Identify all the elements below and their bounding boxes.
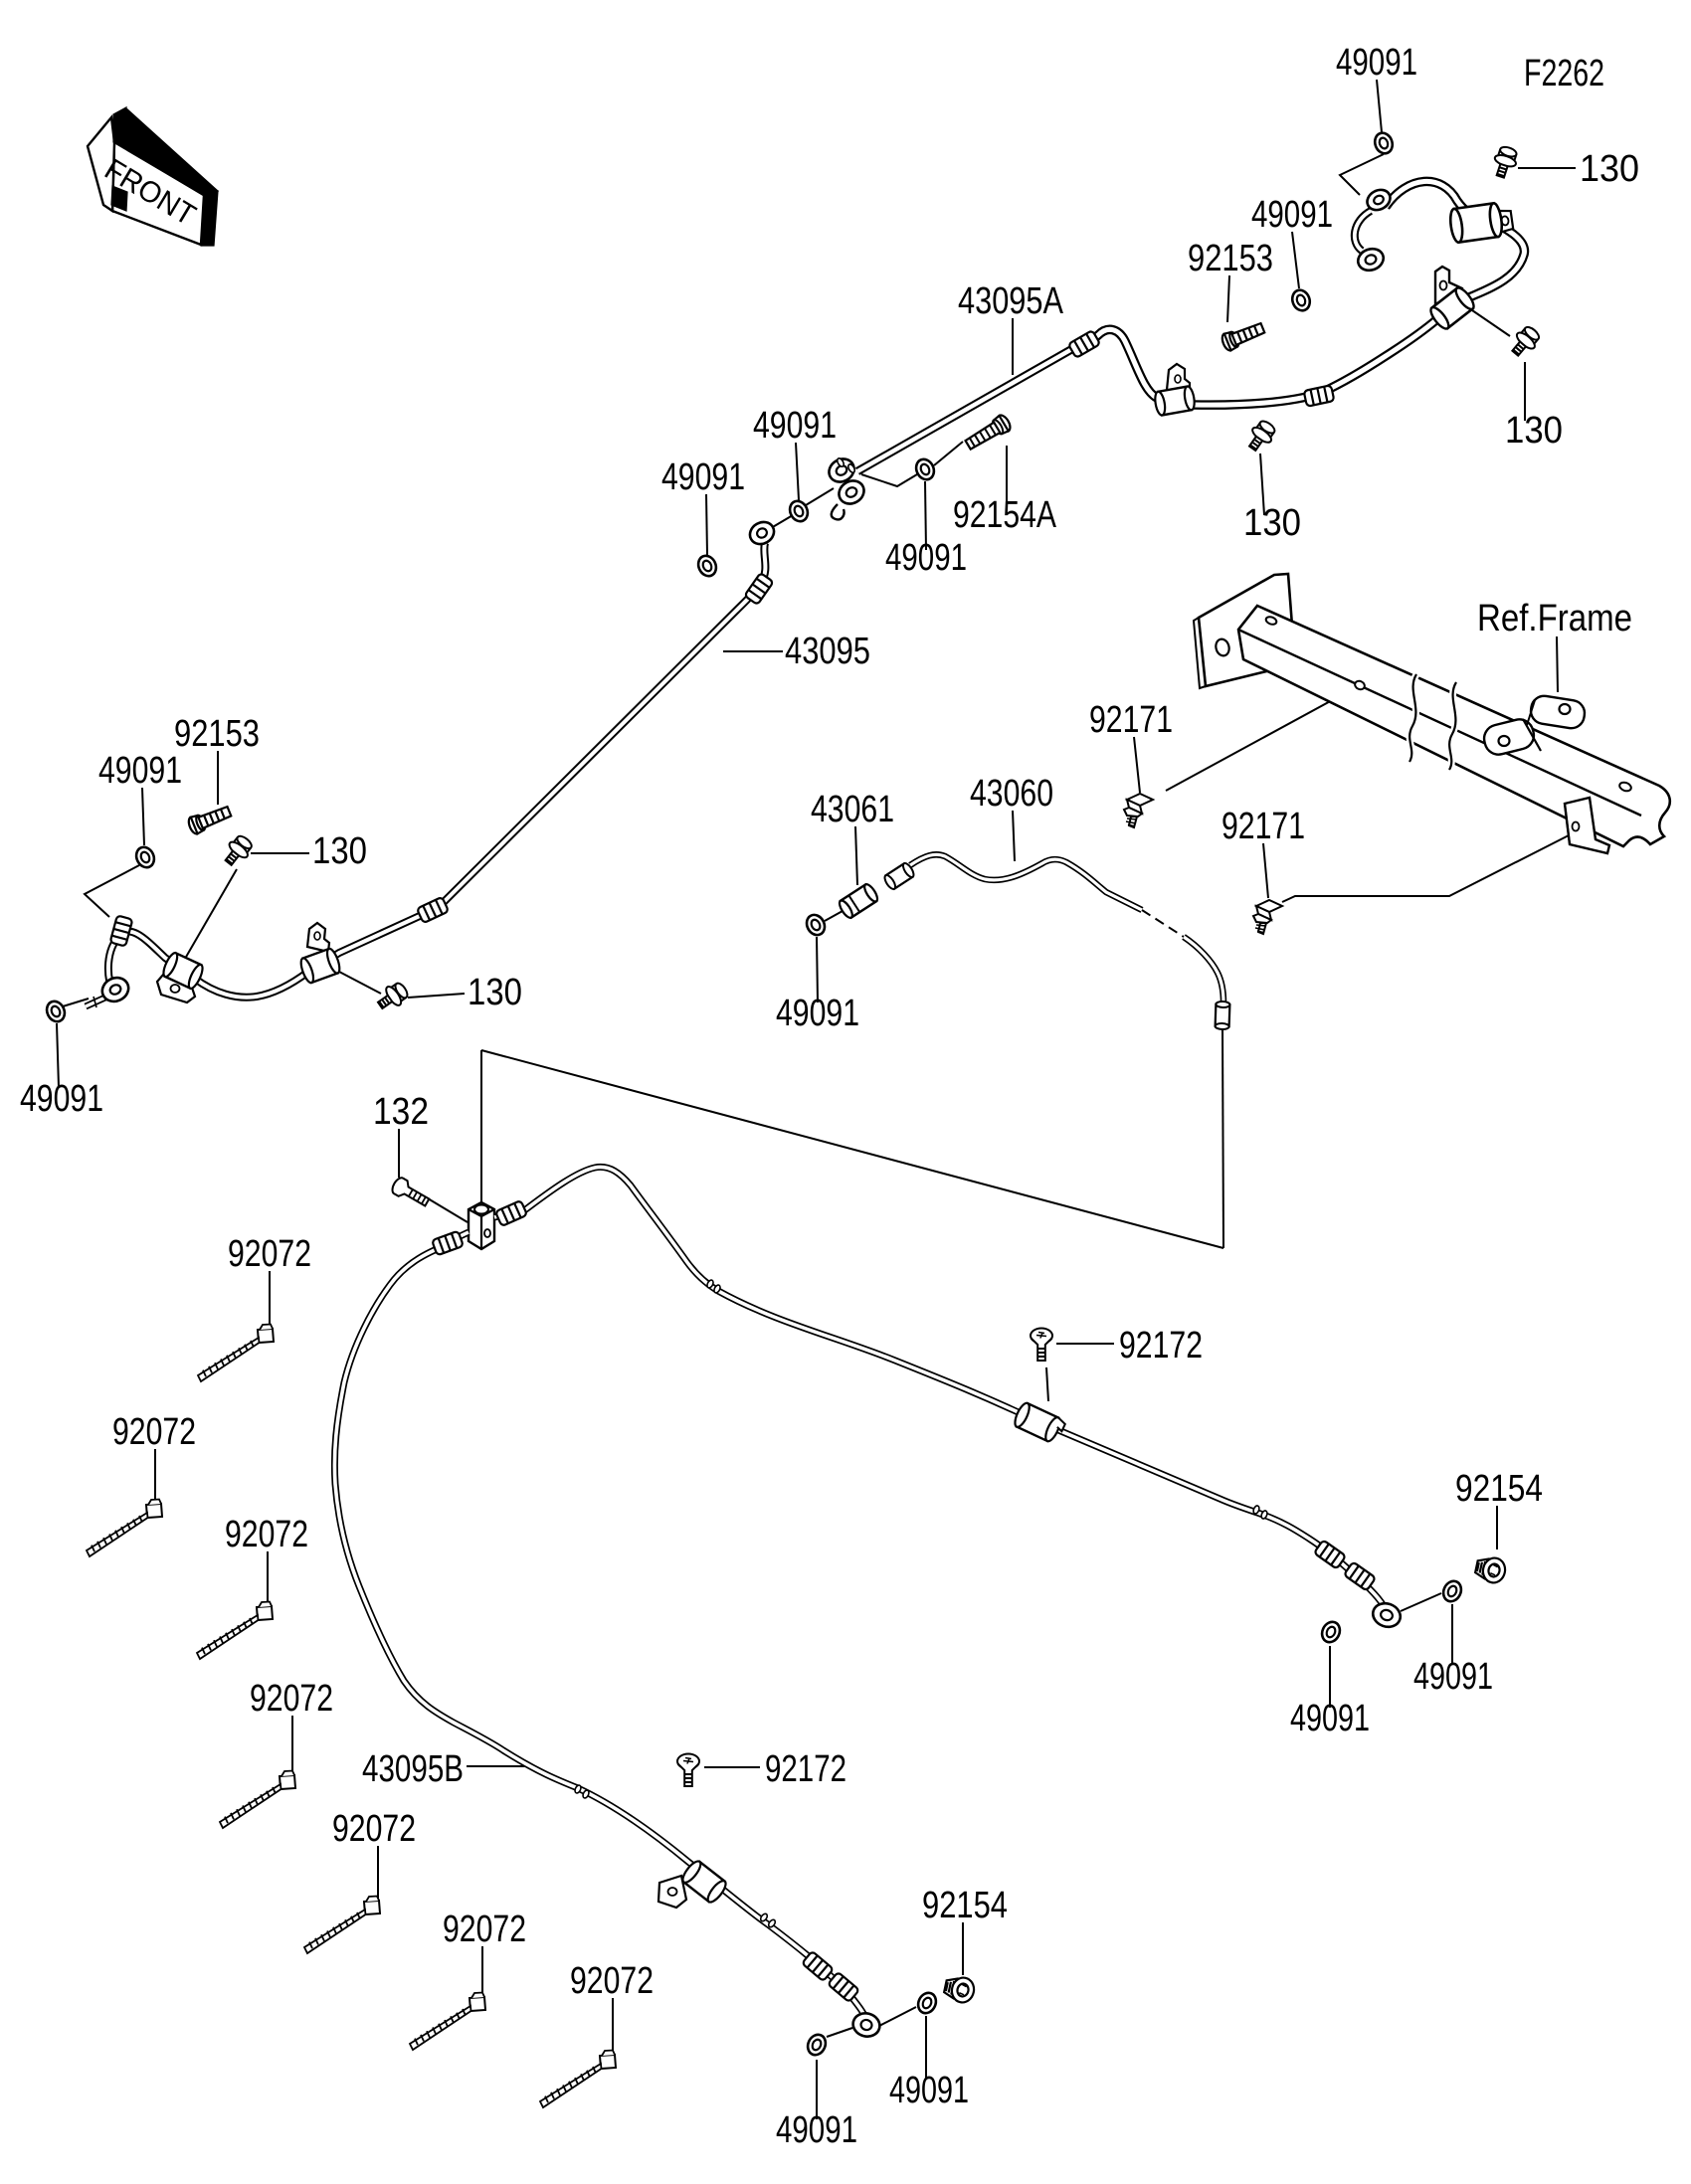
svg-text:43095: 43095 [785, 631, 870, 672]
svg-text:92072: 92072 [443, 1909, 526, 1950]
svg-text:130: 130 [312, 830, 367, 872]
svg-text:92154: 92154 [1455, 1468, 1543, 1510]
svg-text:Ref.Frame: Ref.Frame [1477, 598, 1632, 639]
svg-text:130: 130 [468, 972, 522, 1013]
svg-text:43095A: 43095A [958, 280, 1064, 322]
svg-text:92153: 92153 [1188, 238, 1273, 279]
svg-text:132: 132 [373, 1091, 429, 1133]
svg-text:49091: 49091 [753, 405, 837, 447]
svg-text:F2262: F2262 [1524, 53, 1604, 94]
svg-text:130: 130 [1505, 410, 1563, 452]
svg-text:92072: 92072 [570, 1960, 654, 2002]
svg-text:92072: 92072 [332, 1808, 416, 1850]
svg-text:92072: 92072 [112, 1411, 196, 1453]
svg-text:49091: 49091 [889, 2070, 969, 2111]
svg-text:49091: 49091 [1336, 42, 1417, 84]
svg-text:92154: 92154 [922, 1885, 1008, 1926]
svg-text:92171: 92171 [1089, 699, 1173, 741]
svg-text:92172: 92172 [1119, 1325, 1203, 1366]
svg-text:92072: 92072 [225, 1514, 308, 1555]
svg-text:92072: 92072 [228, 1233, 311, 1275]
svg-text:49091: 49091 [20, 1078, 103, 1120]
svg-text:130: 130 [1580, 148, 1639, 190]
svg-text:49091: 49091 [1251, 194, 1333, 236]
svg-text:92171: 92171 [1221, 806, 1305, 847]
svg-text:92154A: 92154A [953, 494, 1057, 536]
svg-text:92172: 92172 [765, 1748, 846, 1790]
svg-text:92072: 92072 [250, 1678, 333, 1720]
svg-text:92153: 92153 [174, 713, 260, 755]
svg-text:43060: 43060 [970, 773, 1053, 815]
svg-text:130: 130 [1243, 502, 1301, 544]
svg-text:49091: 49091 [661, 456, 745, 498]
svg-text:43095B: 43095B [362, 1748, 464, 1790]
svg-text:49091: 49091 [98, 750, 182, 792]
svg-text:43061: 43061 [811, 789, 894, 830]
